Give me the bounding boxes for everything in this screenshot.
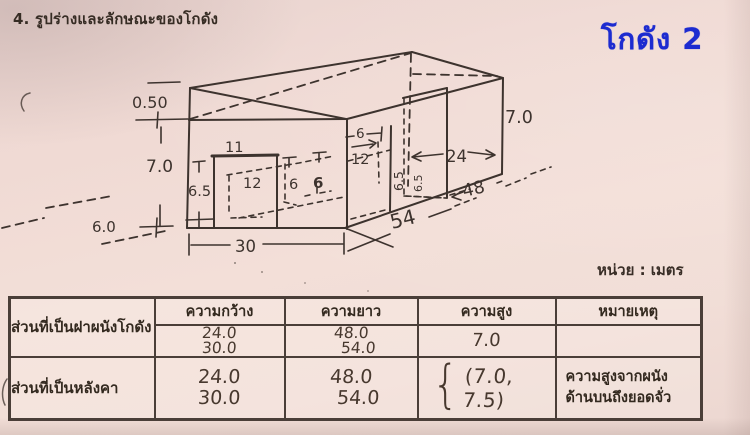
walls-width-cell: 24.0 30.0 [155, 325, 285, 357]
dim-wall-height-left: 7.0 [146, 157, 173, 177]
dim-mid-opening-height: 6.5 [391, 171, 406, 191]
row-label-walls: ส่วนที่เป็นฝาผนังโกดัง [10, 298, 155, 357]
dim-right-door-width: 24 [446, 147, 467, 166]
walls-remark-cell [556, 325, 702, 357]
scanned-page: 4. รูปร่างและลักษณะของโกดัง โกดัง 2 หน่ว… [0, 0, 750, 435]
roof-width-1: 24.0 [198, 367, 242, 388]
dim-front-width: 30 [235, 237, 256, 256]
dim-right-opening-height: 6.5 [412, 175, 425, 193]
walls-height: 7.0 [471, 330, 501, 351]
walls-width-2: 30.0 [202, 341, 238, 356]
dim-back-opening-height-a: 6 [289, 177, 298, 193]
roof-length-cell: 48.0 54.0 [285, 357, 418, 420]
walls-length-cell: 48.0 54.0 [285, 325, 418, 357]
roof-remark-line-1: ความสูงจากผนัง [557, 367, 701, 388]
dim-front-door-inner-width: 12 [243, 176, 261, 192]
roof-height-cell: { (7.0, 7.5) [418, 357, 556, 420]
dim-front-door-width: 11 [225, 140, 243, 156]
roof-width-cell: 24.0 30.0 [155, 357, 285, 420]
roof-length-2: 54.0 [336, 388, 380, 409]
roof-width-2: 30.0 [198, 388, 242, 409]
dim-back-opening-height-b: 6 [313, 174, 323, 192]
col-header-width: ความกว้าง [155, 298, 285, 325]
col-header-height: ความสูง [418, 298, 556, 325]
dim-mid-opening-width: 6 [356, 126, 365, 142]
roof-length-1: 48.0 [329, 367, 373, 388]
dim-front-door-height: 6.5 [188, 184, 211, 200]
spec-table: ส่วนที่เป็นฝาผนังโกดัง ความกว้าง ความยาว… [8, 296, 703, 421]
dim-ground-offset: 6.0 [92, 218, 116, 236]
dim-mid-opening-inner-width: 12 [351, 152, 369, 168]
row-label-roof: ส่วนที่เป็นหลังคา [10, 357, 155, 420]
walls-height-cell: 7.0 [418, 325, 556, 357]
roof-height: (7.0, 7.5) [461, 364, 556, 412]
col-header-length: ความยาว [285, 298, 418, 325]
walls-length-2: 54.0 [340, 341, 376, 356]
roof-remark-cell: ความสูงจากผนัง ด้านบนถึงยอดจั่ว [556, 357, 702, 420]
middle-opening [346, 127, 390, 219]
col-header-remark: หมายเหตุ [556, 298, 702, 325]
spec-table-wrap: ส่วนที่เป็นฝาผนังโกดัง ความกว้าง ความยาว… [8, 296, 700, 418]
dim-wall-length: 54 [387, 204, 418, 233]
dim-roof-length: 48 [461, 177, 487, 201]
dim-roof-rise: 0.50 [132, 93, 168, 112]
dim-wall-height-right: 7.0 [505, 108, 533, 128]
roof-remark-line-2: ด้านบนถึงยอดจั่ว [557, 388, 701, 409]
